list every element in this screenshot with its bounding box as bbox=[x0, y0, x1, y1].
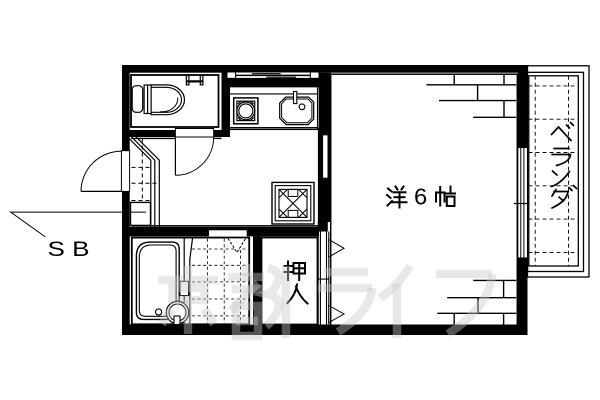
svg-text:S B: S B bbox=[48, 237, 90, 261]
svg-text:6: 6 bbox=[414, 184, 427, 210]
